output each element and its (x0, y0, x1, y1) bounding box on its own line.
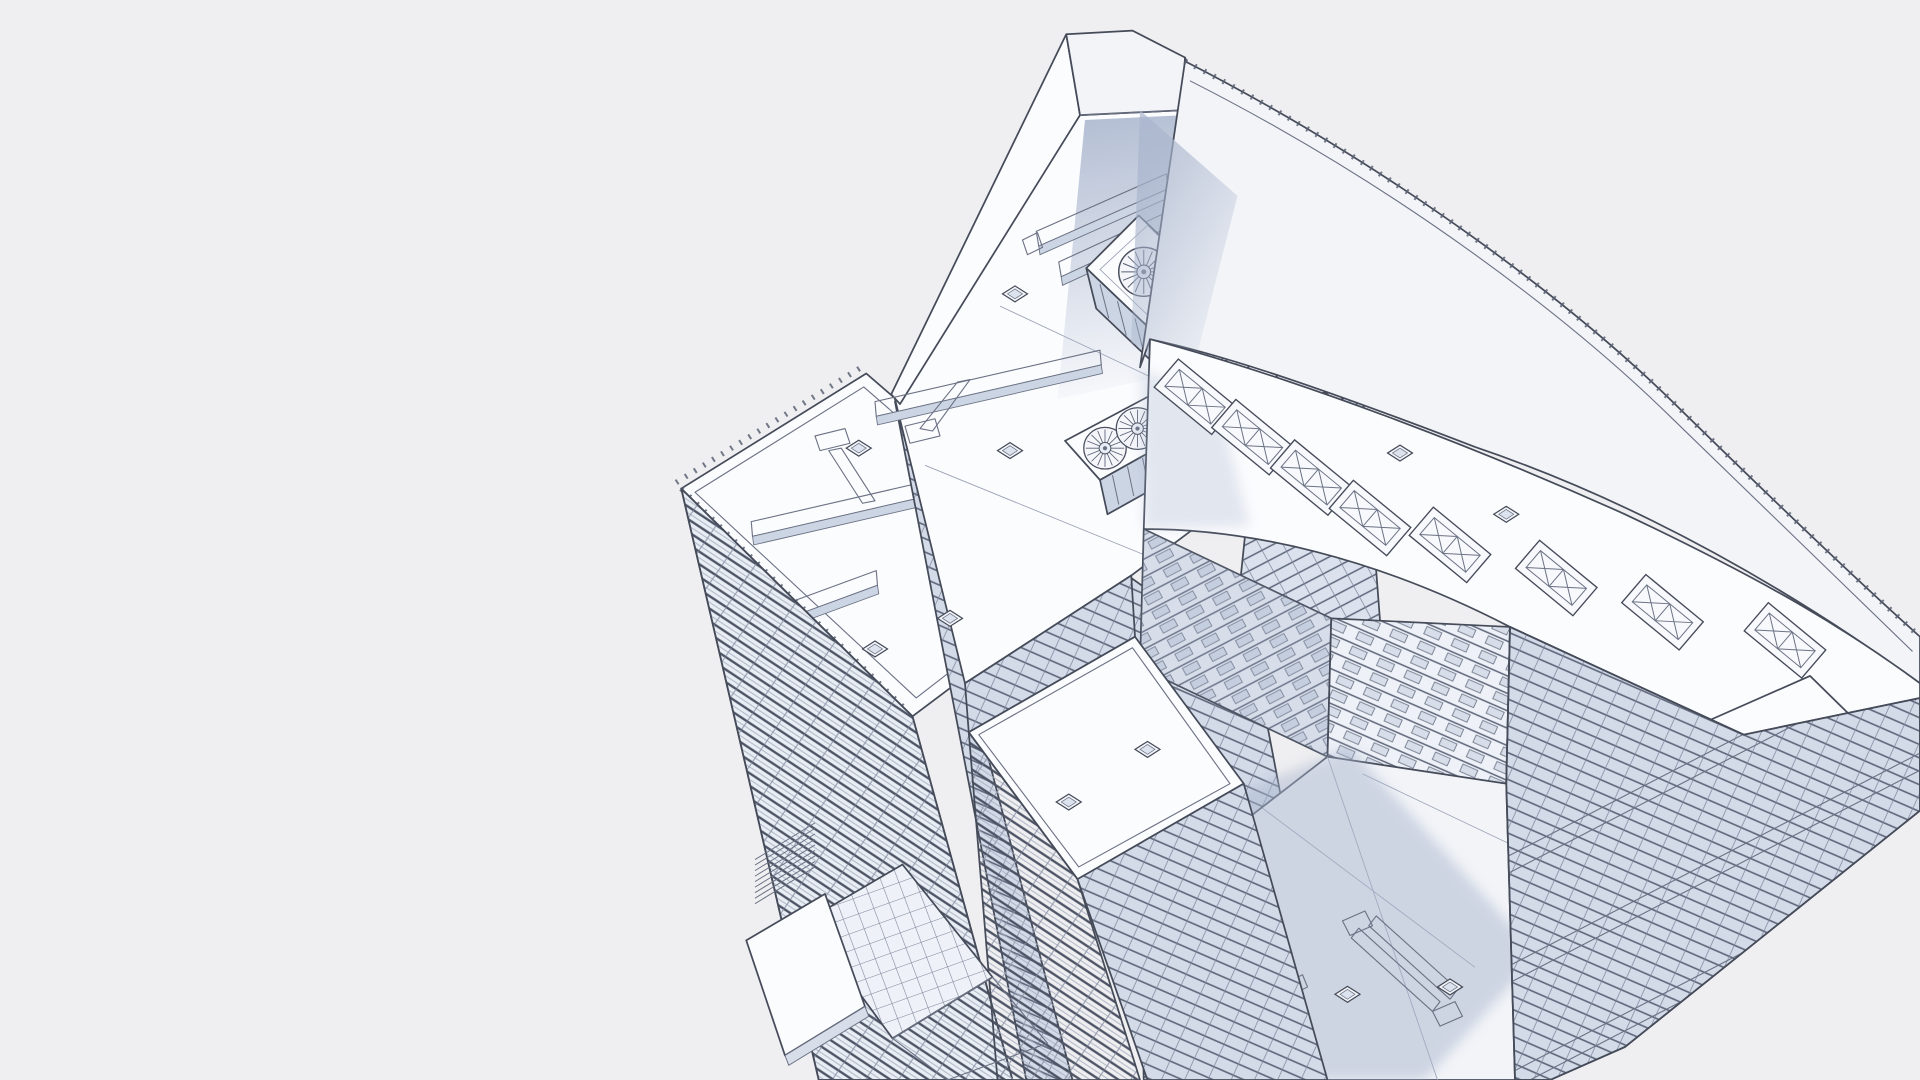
render-viewport (0, 0, 1920, 1080)
building-wireframe-render (0, 0, 1920, 1080)
